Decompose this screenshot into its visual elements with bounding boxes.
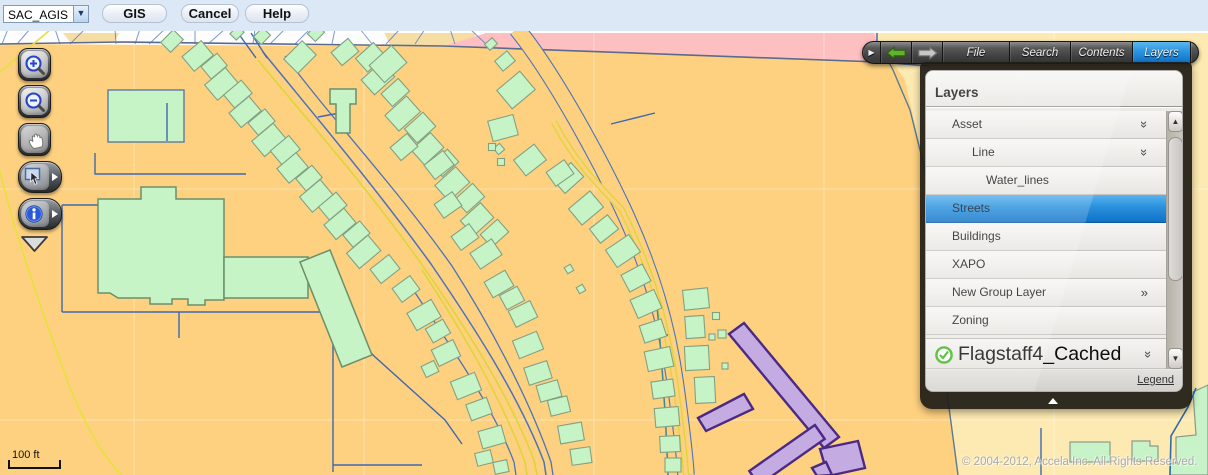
svg-text:100 ft: 100 ft <box>12 449 40 461</box>
